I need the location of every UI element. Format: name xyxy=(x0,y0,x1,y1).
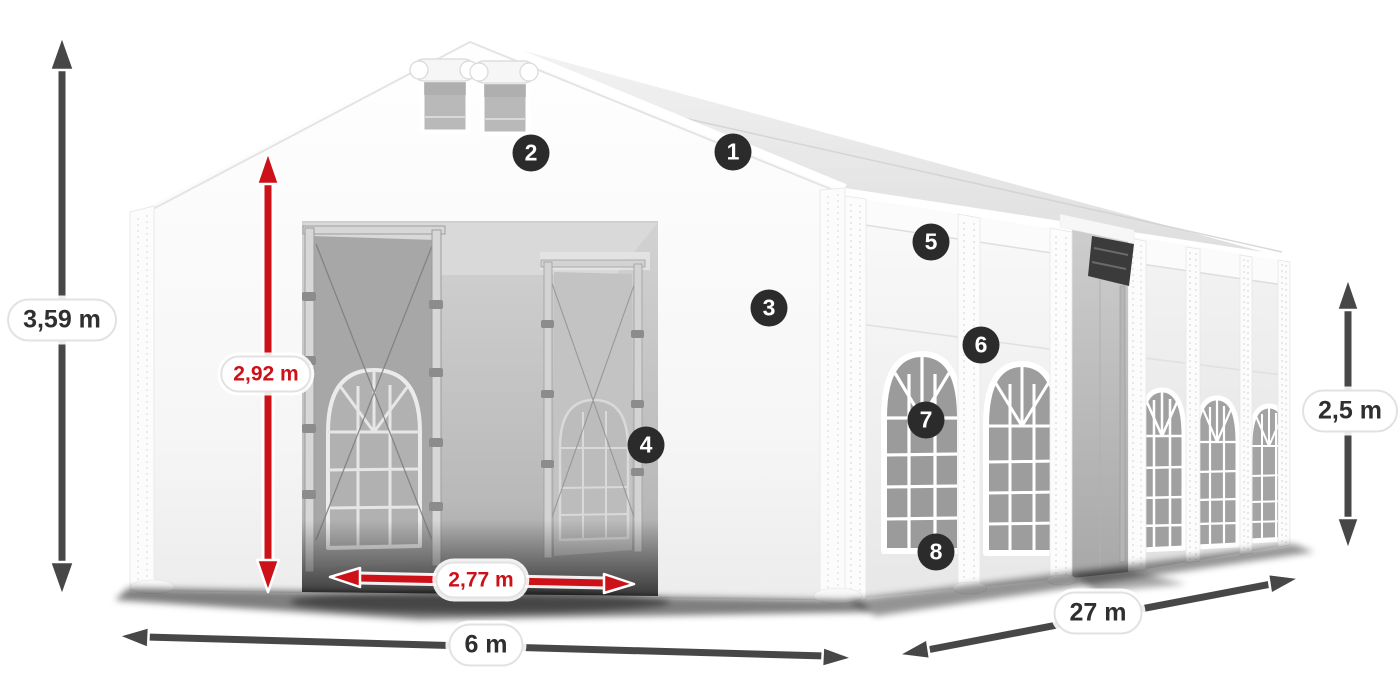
dimension-label-door-height: 2,92 m xyxy=(220,356,311,393)
marker-badge-8: 8 xyxy=(918,534,955,571)
tent-dimension-diagram: 3,59 m 2,92 m 2,77 m 6 m 27 m 2,5 m 1 2 … xyxy=(0,0,1400,700)
marker-badge-5: 5 xyxy=(913,224,950,261)
door-panel-inner xyxy=(548,272,638,556)
dimension-label-total-height: 3,59 m xyxy=(7,299,117,342)
marker-badge-1: 1 xyxy=(715,134,752,171)
marker-badge-4: 4 xyxy=(628,427,665,464)
marker-badge-3: 3 xyxy=(751,290,788,327)
marker-badge-2: 2 xyxy=(513,135,550,172)
dimension-label-door-width: 2,77 m xyxy=(435,562,526,599)
marker-badge-6: 6 xyxy=(963,327,1000,364)
dimension-label-length: 27 m xyxy=(1054,592,1143,635)
gable-vent-right xyxy=(470,61,538,134)
dimension-label-front-width: 6 m xyxy=(448,624,523,667)
side-window-4 xyxy=(1196,398,1238,547)
front-door-opening xyxy=(302,222,658,596)
tent-illustration xyxy=(0,0,1400,700)
marker-badge-7: 7 xyxy=(908,402,945,439)
side-window-3 xyxy=(1140,390,1184,550)
side-window-1 xyxy=(884,354,960,551)
dimension-label-side-height: 2,5 m xyxy=(1302,390,1398,433)
side-door-pole xyxy=(1120,286,1125,562)
side-wall-back-section xyxy=(1128,236,1290,572)
side-wall-front-section xyxy=(845,196,1077,600)
door-panel-left xyxy=(312,236,436,568)
side-window-2 xyxy=(986,364,1058,553)
gable-vent-left xyxy=(410,59,478,132)
